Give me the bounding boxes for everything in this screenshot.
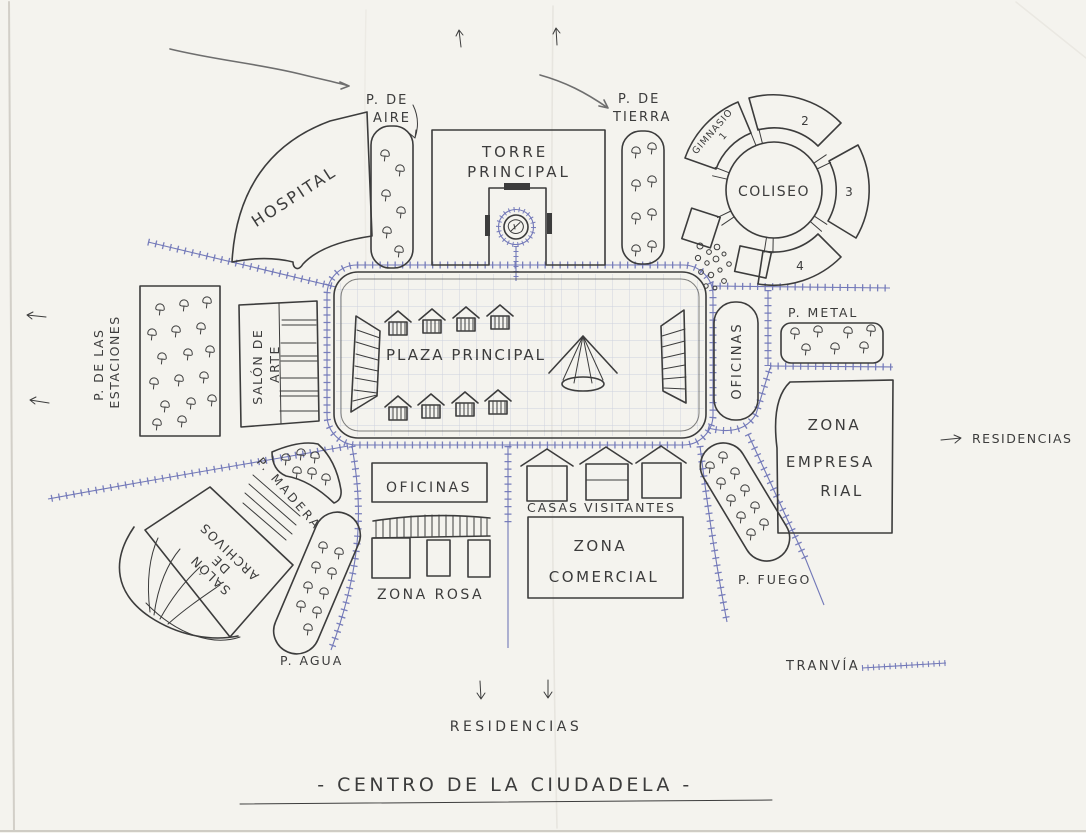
residencias-east-label: RESIDENCIAS [972, 431, 1072, 446]
coliseo-label: COLISEO [738, 184, 810, 200]
casas-visitantes-label: CASAS VISITANTES [527, 500, 676, 515]
coliseo-segment-4-label: 4 [796, 259, 804, 273]
plaza-principal: PLAZA PRINCIPAL [334, 272, 706, 438]
residencias-south-label: RESIDENCIAS [450, 719, 583, 735]
p-agua-label: P. AGUA [280, 653, 343, 668]
zona-rosa-label: ZONA ROSA [377, 587, 484, 603]
map-title: - CENTRO DE LA CIUDADELA - [317, 774, 693, 796]
estaciones-label: P. DE LAS ESTACIONES [91, 315, 122, 408]
coliseo-segment-2-label: 2 [801, 114, 809, 128]
oficinas-east-label: OFICINAS [730, 322, 745, 399]
p-fuego-label: P. FUEGO [738, 572, 811, 587]
plaza-principal-label: PLAZA PRINCIPAL [386, 346, 546, 364]
citadel-map: HOSPITAL P. DE AIRE TORRE PRINCIPAL [0, 0, 1086, 833]
coliseo-segment-3-label: 3 [845, 185, 853, 199]
scanned-map-page: HOSPITAL P. DE AIRE TORRE PRINCIPAL [0, 0, 1086, 833]
tranvia-label: TRANVÍA [785, 658, 860, 674]
oficinas-south-label: OFICINAS [386, 480, 472, 496]
p-metal-label: P. METAL [788, 305, 858, 320]
